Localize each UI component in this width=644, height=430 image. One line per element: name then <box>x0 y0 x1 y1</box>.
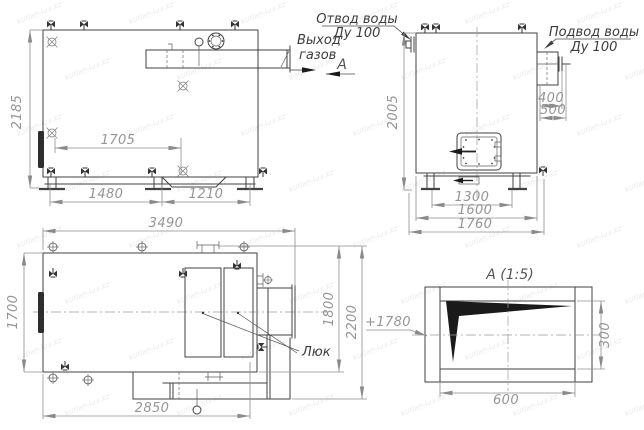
valve-icon <box>49 268 57 277</box>
watermark-text: kotlan-lux.kz <box>175 391 224 418</box>
base-hatch <box>453 177 479 184</box>
valve-icon <box>47 21 55 30</box>
datum-icon <box>178 81 189 92</box>
dim-text: 1760 <box>458 217 493 232</box>
label-text: Люк <box>301 345 331 360</box>
valve-icon <box>61 361 69 370</box>
dim-text: 1600 <box>458 203 493 218</box>
label-text: Ду 100 <box>570 40 618 55</box>
watermark-text: kotlan-lux.kz <box>63 391 112 418</box>
dim-text: 300 <box>598 322 613 348</box>
dim-text: 1705 <box>101 133 136 148</box>
watermark-text: kotlan-lux.kz <box>63 279 112 306</box>
nozzle-icon <box>47 372 59 384</box>
datum-icon <box>47 128 58 139</box>
datum-icon <box>178 166 189 177</box>
watermark-text: kotlan-lux.kz <box>175 279 224 306</box>
dim-text: 600 <box>493 393 519 408</box>
watermark-text: kotlan-lux.kz <box>575 223 624 250</box>
watermark-text: kotlan-lux.kz <box>175 55 224 82</box>
valve-icon <box>421 24 429 33</box>
watermark-text: kotlan-lux.kz <box>511 55 560 82</box>
valve-icon <box>80 21 88 30</box>
watermark-text: kotlan-lux.kz <box>287 167 336 194</box>
watermark-text: kotlan-lux.kz <box>399 279 448 306</box>
watermark-text: kotlan-lux.kz <box>623 279 644 306</box>
watermark-text: kotlan-lux.kz <box>623 391 644 418</box>
nozzle-icon <box>82 374 94 386</box>
dim-text: 500 <box>540 103 566 118</box>
watermark-text: kotlan-lux.kz <box>575 111 624 138</box>
watermark-text: kotlan-lux.kz <box>623 167 644 194</box>
watermark-text: kotlan-lux.kz <box>15 0 64 26</box>
watermark-text: kotlan-lux.kz <box>63 55 112 82</box>
water-inlet-label: Подвод воды Ду 100 <box>544 25 639 55</box>
label-text: Отвод воды <box>316 12 397 27</box>
watermark-text: kotlan-lux.kz <box>623 55 644 82</box>
side-manhole-flange <box>38 292 44 333</box>
valve-icon <box>148 168 156 177</box>
valve-icon <box>231 21 239 30</box>
boiler-body-front <box>416 33 537 173</box>
watermark-text: kotlan-lux.kz <box>127 0 176 26</box>
watermark-text: kotlan-lux.kz <box>15 335 64 362</box>
door-hinge <box>495 142 501 147</box>
label-text: Подвод воды <box>549 25 639 40</box>
watermark-text: kotlan-lux.kz <box>463 0 512 26</box>
flange-icon <box>208 33 224 49</box>
valve-icon <box>179 268 187 277</box>
dim-text: 2850 <box>135 401 170 416</box>
valve-icon <box>259 168 267 177</box>
door-hinge <box>495 156 501 161</box>
dim-text: 2200 <box>345 305 360 340</box>
nozzle-icon <box>47 241 59 253</box>
section-letter: А <box>336 57 347 73</box>
watermark-text: kotlan-lux.kz <box>239 111 288 138</box>
dim-text: 1700 <box>6 295 21 330</box>
watermark-text: kotlan-lux.kz <box>463 335 512 362</box>
dim-text: 1480 <box>89 187 124 202</box>
dim-text: +1780 <box>365 315 411 330</box>
detail-a-view: А (1:5) +1780 300 600 <box>365 267 613 408</box>
label-text: Ду 100 <box>333 26 381 41</box>
elevation-mark: +1780 <box>365 315 427 336</box>
watermark-text: kotlan-lux.kz <box>239 0 288 26</box>
dim-text: 2005 <box>386 95 401 130</box>
detail-title: А (1:5) <box>485 267 533 283</box>
boiler-body-side <box>43 30 258 177</box>
watermark-text: kotlan-lux.kz <box>511 279 560 306</box>
valve-icon <box>432 24 440 33</box>
dim-text: 1210 <box>189 187 224 202</box>
inspection-door <box>449 133 501 170</box>
boiler-technical-drawing: kotlan-lux.kzkotlan-lux.kzkotlan-lux.kzk… <box>0 0 644 430</box>
datum-icon <box>47 37 58 48</box>
side-stub <box>257 273 263 287</box>
watermark-text: kotlan-lux.kz <box>575 0 624 26</box>
valve-icon <box>47 168 55 177</box>
drawing-svg: kotlan-lux.kzkotlan-lux.kzkotlan-lux.kzk… <box>0 0 644 430</box>
chimney-stub <box>197 241 219 253</box>
watermark-text: kotlan-lux.kz <box>287 391 336 418</box>
watermark-text: kotlan-lux.kz <box>463 111 512 138</box>
watermark-text: kotlan-lux.kz <box>239 335 288 362</box>
side-view <box>38 21 290 189</box>
plan-view: Люк <box>33 241 331 414</box>
dim-text: 2185 <box>10 95 25 130</box>
valve-icon <box>176 21 184 30</box>
dim-1705: 1705 <box>55 133 181 174</box>
dim-front-height: 2005 <box>386 33 416 190</box>
door-handle-arrow <box>449 148 462 155</box>
nozzle-icon <box>263 275 273 285</box>
dim-400-500: 400 500 <box>538 64 566 121</box>
section-arrow <box>326 71 340 76</box>
watermark-text: kotlan-lux.kz <box>399 55 448 82</box>
watermark-text: kotlan-lux.kz <box>399 391 448 418</box>
label-text: газов <box>299 48 336 63</box>
watermark-text: kotlan-lux.kz <box>127 335 176 362</box>
dim-text: 1800 <box>322 292 337 327</box>
dim-text: 3490 <box>149 216 184 231</box>
valve-icon <box>518 24 526 33</box>
side-manhole-flange <box>38 131 44 168</box>
boiler-body-plan <box>43 253 257 372</box>
